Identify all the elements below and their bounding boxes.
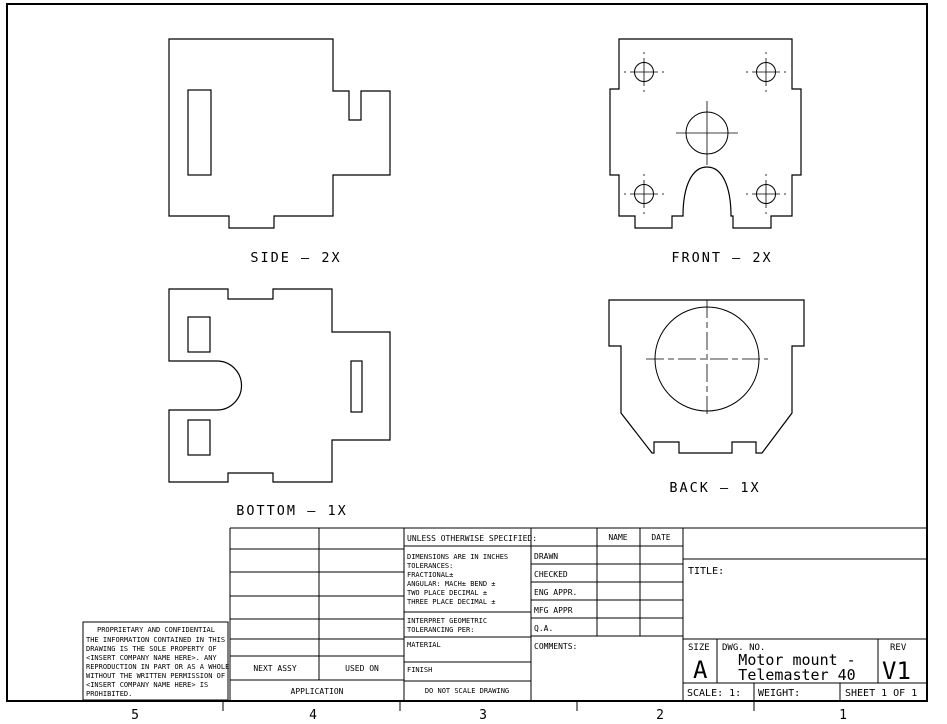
bottom-view-label: BOTTOM – 1X — [236, 503, 347, 519]
side-view-outline — [169, 39, 390, 228]
back-view — [609, 300, 804, 453]
side-view-label: SIDE – 2X — [250, 250, 341, 266]
rev-value: V1 — [882, 657, 911, 685]
proprietary-line: PROHIBITED. — [86, 690, 132, 698]
front-view-outline — [610, 39, 801, 228]
zone-number-4: 4 — [309, 708, 317, 723]
bottom-view-slot-upper — [188, 317, 210, 352]
zone-number-2: 2 — [656, 708, 664, 723]
scale-label: SCALE: 1: — [687, 688, 741, 699]
zone-numbers: 5 4 3 2 1 — [131, 708, 847, 723]
tolerance-line: TOLERANCES: — [407, 562, 453, 570]
back-view-centerlines — [646, 300, 768, 418]
size-label: SIZE — [688, 643, 710, 653]
used-on-label: USED ON — [345, 664, 379, 673]
zone-number-1: 1 — [839, 708, 847, 723]
zone-number-5: 5 — [131, 708, 139, 723]
proprietary-line: <INSERT COMPANY NAME HERE> IS — [86, 681, 208, 689]
material-label: MATERIAL — [407, 641, 441, 649]
drawing-sheet: 5 4 3 2 1 SIDE – 2X — [0, 0, 947, 724]
back-view-outline — [609, 300, 804, 453]
front-center-hole-crosshair — [676, 101, 738, 165]
tolerancing-per-label: TOLERANCING PER: — [407, 626, 474, 634]
date-column-header: DATE — [651, 533, 670, 542]
title-block: TITLE: SIZE A DWG. NO. Motor mount - Tel… — [687, 566, 917, 699]
front-view-label: FRONT – 2X — [671, 250, 772, 266]
do-not-scale-label: DO NOT SCALE DRAWING — [425, 687, 509, 695]
proprietary-title: PROPRIETARY AND CONFIDENTIAL — [97, 626, 215, 634]
tolerance-line: TWO PLACE DECIMAL ± — [407, 589, 487, 597]
bottom-view-outline — [169, 289, 390, 482]
name-column-header: NAME — [608, 533, 627, 542]
tolerance-line: THREE PLACE DECIMAL ± — [407, 598, 496, 606]
approval-row-checked: CHECKED — [534, 570, 568, 579]
side-view — [169, 39, 390, 228]
tolerance-line: FRACTIONAL± — [407, 571, 453, 579]
approval-row-eng-appr: ENG APPR. — [534, 588, 577, 597]
bottom-view — [169, 289, 390, 482]
finish-label: FINISH — [407, 666, 432, 674]
approval-row-mfg-appr: MFG APPR — [534, 606, 573, 615]
bottom-view-slot-lower — [188, 420, 210, 455]
side-view-slot — [188, 90, 211, 175]
proprietary-line: <INSERT COMPANY NAME HERE>. ANY — [86, 654, 217, 662]
bottom-view-slot-right — [351, 361, 362, 412]
next-assy-label: NEXT ASSY — [253, 664, 297, 673]
proprietary-line: WITHOUT THE WRITTEN PERMISSION OF — [86, 672, 225, 680]
tolerance-line: ANGULAR: MACH± BEND ± — [407, 580, 496, 588]
drawing-canvas: 5 4 3 2 1 SIDE – 2X — [0, 0, 947, 724]
approval-row-drawn: DRAWN — [534, 552, 558, 561]
title-label: TITLE: — [688, 566, 724, 577]
tolerance-block: UNLESS OTHERWISE SPECIFIED: DIMENSIONS A… — [407, 534, 537, 695]
interpret-geometric-label: INTERPRET GEOMETRIC — [407, 617, 487, 625]
tolerance-header: UNLESS OTHERWISE SPECIFIED: — [407, 534, 537, 543]
tolerance-line: DIMENSIONS ARE IN INCHES — [407, 553, 508, 561]
back-view-label: BACK – 1X — [669, 480, 760, 496]
weight-label: WEIGHT: — [758, 688, 800, 699]
proprietary-line: REPRODUCTION IN PART OR AS A WHOLE — [86, 663, 229, 671]
sheet-label: SHEET 1 OF 1 — [845, 688, 917, 699]
proprietary-line: THE INFORMATION CONTAINED IN THIS — [86, 636, 225, 644]
proprietary-note: PROPRIETARY AND CONFIDENTIAL THE INFORMA… — [86, 626, 229, 698]
zone-number-3: 3 — [479, 708, 487, 723]
application-label: APPLICATION — [291, 687, 344, 696]
dwg-no-value-line2: Telemaster 40 — [738, 666, 855, 684]
approval-table: NAME DATE DRAWN CHECKED ENG APPR. MFG AP… — [534, 533, 671, 651]
proprietary-line: DRAWING IS THE SOLE PROPERTY OF — [86, 645, 217, 653]
comments-label: COMMENTS: — [534, 642, 577, 651]
approval-row-qa: Q.A. — [534, 624, 553, 633]
front-view — [610, 39, 801, 228]
rev-label: REV — [890, 643, 907, 653]
size-value: A — [693, 656, 708, 684]
